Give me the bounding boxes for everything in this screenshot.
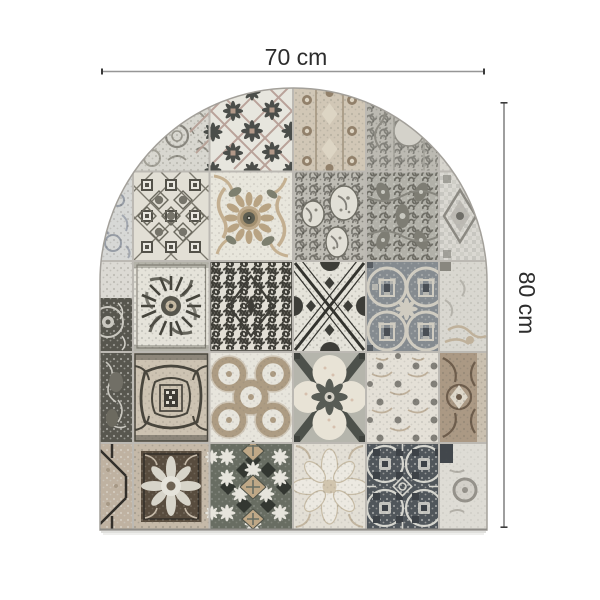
svg-text:70 cm: 70 cm (265, 44, 328, 70)
svg-text:80 cm: 80 cm (514, 272, 540, 335)
